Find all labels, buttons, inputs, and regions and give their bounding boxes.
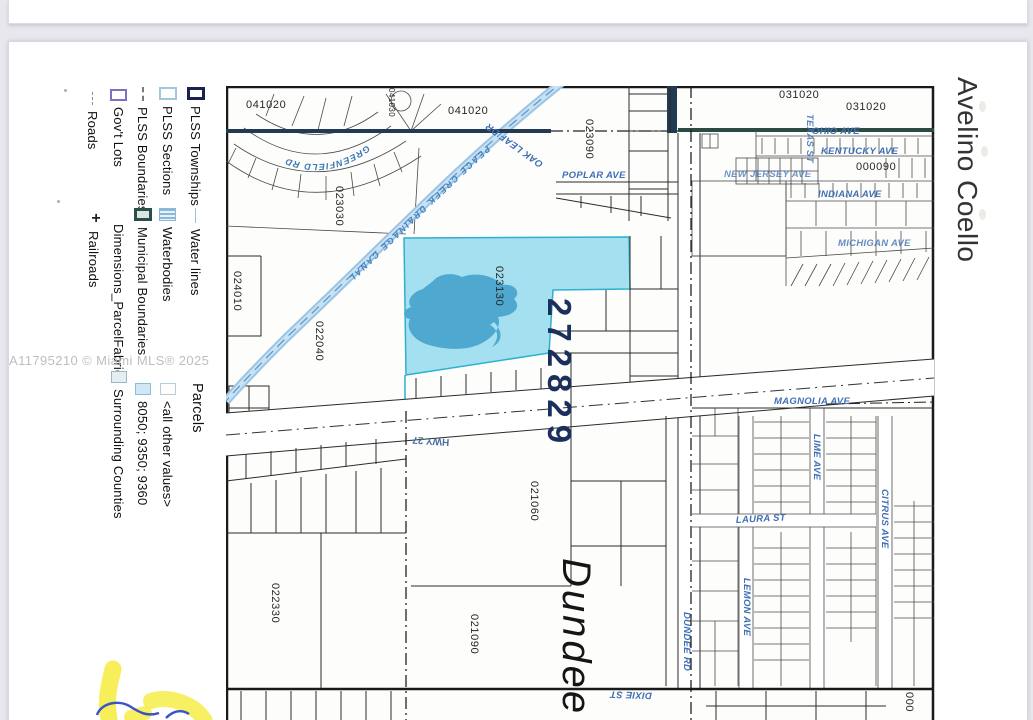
parcel-label-000090: 000090 [856, 161, 896, 173]
street-label-lime-ave: LIME AVE [811, 434, 822, 481]
parcel-label-023030: 023030 [333, 186, 345, 226]
legend-item-parcels-header: Parcels [188, 383, 206, 433]
govt-lots-icon [111, 89, 128, 101]
plss-sections-icon [159, 87, 177, 100]
parcel-label-021090: 021090 [468, 614, 480, 654]
parcel-label-000: 000 [903, 692, 915, 712]
waterbodies-icon [160, 208, 177, 221]
legend-item-waterbodies: Waterbodies [159, 208, 177, 302]
all-other-values-icon [160, 383, 176, 395]
parcel-label-041030: 041030 [387, 88, 396, 117]
legend-label: PLSS Sections [161, 106, 176, 195]
parcel-label-022040: 022040 [313, 321, 325, 361]
street-label-ohio-ave: OHIO AVE [812, 126, 860, 137]
document-page: A11795210 © Miami MLS® 2025 PLSS Townshi… [8, 41, 1028, 720]
legend-item-dimensions-parcelfabric: Dimensions_ParcelFabric [110, 205, 128, 377]
blue-pen-mark [166, 711, 189, 718]
street-label-citrus-ave: CITRUS AVE [879, 489, 890, 549]
street-label-magnolia-ave: MAGNOLIA AVE [774, 396, 850, 407]
legend-item-plss-townships: PLSS Townships [187, 87, 205, 206]
legend-item-govt-lots: Gov't Lots [110, 89, 128, 167]
street-label-texas-st: TEXAS ST [804, 114, 815, 164]
yellow-highlighter-stroke [107, 669, 113, 719]
legend-item-municipal-boundaries: Municipal Boundaries [134, 208, 152, 355]
street-label-poplar-ave: POPLAR AVE [562, 170, 626, 181]
city-label-dundee: Dundee [554, 558, 598, 716]
legend-label: PLSS Boundaries [136, 107, 151, 213]
parcel-label-024010: 024010 [231, 271, 243, 311]
parcel-label-031020-e: 031020 [846, 101, 886, 113]
legend-item-plss-sections: PLSS Sections [159, 87, 177, 195]
parcel-label-023130: 023130 [493, 266, 505, 306]
legend-item-railroads: + Railroads [85, 211, 103, 288]
blue-pen-mark [97, 703, 159, 715]
legend-item-plss-boundaries: PLSS Boundaries [134, 87, 152, 213]
municipal-boundaries-icon [134, 208, 152, 221]
owner-name-label: Avelino Coello [951, 77, 983, 263]
legend-label: Roads [86, 111, 101, 150]
previous-page-edge [8, 0, 1028, 24]
roads-icon [93, 92, 94, 105]
legend-label: Gov't Lots [112, 107, 127, 167]
street-label-new-jersey-ave: NEW JERSEY AVE [724, 169, 812, 180]
spacer [119, 205, 120, 218]
legend-label: 8050; 9350; 9360 [136, 401, 151, 505]
street-label-michigan-ave: MICHIGAN AVE [838, 238, 911, 249]
legend-label: Municipal Boundaries [136, 227, 151, 355]
parcel-label-022330: 022330 [269, 583, 281, 623]
street-label-indiana-ave: INDIANA AVE [818, 189, 882, 200]
parcel-class-icon [135, 383, 151, 395]
legend-item-8050-9350-9360: 8050; 9350; 9360 [134, 383, 152, 505]
viewer-background: A11795210 © Miami MLS® 2025 PLSS Townshi… [0, 0, 1033, 720]
railroads-icon: + [86, 211, 102, 225]
watermark: A11795210 © Miami MLS® 2025 [9, 353, 209, 368]
legend-label: <all other values> [161, 401, 176, 507]
yellow-highlighter-stroke [131, 713, 145, 717]
scan-speck [57, 200, 60, 203]
legend-label: Parcels [189, 383, 205, 433]
scan-speck [64, 89, 67, 92]
parcel-label-021060: 021060 [528, 481, 540, 521]
street-label-lemon-ave: LEMON AVE [741, 578, 752, 636]
parcel-label-041020-w: 041020 [246, 99, 286, 111]
parcel-label-041020-e: 041020 [448, 105, 488, 117]
parcel-label-023090: 023090 [583, 119, 595, 159]
legend-label: Waterbodies [161, 227, 176, 302]
section-number-272829: 272829 [541, 298, 578, 450]
street-label-dixie-st: DIXIE ST [609, 688, 652, 700]
legend-label: Surrounding Counties [112, 389, 127, 519]
street-label-dundee-rd: DUNDEE RD [681, 612, 692, 671]
legend-label: Water lines [189, 229, 204, 296]
legend-item-roads: Roads [84, 92, 102, 150]
parcel-label-031020-w: 031020 [779, 89, 819, 101]
plss-townships-icon [187, 87, 205, 100]
street-label-kentucky-ave: KENTUCKY AVE [821, 146, 899, 157]
legend-item-all-other-values: <all other values> [159, 383, 177, 507]
plss-boundaries-icon [142, 87, 144, 101]
yellow-highlighter-stroke [151, 699, 205, 720]
surrounding-counties-icon [111, 371, 127, 383]
parcel-map: PEACE CREEK DRAINAGE CANAL GREENFIELD RD [226, 86, 936, 720]
legend-item-surrounding-counties: Surrounding Counties [110, 371, 128, 519]
legend-label: Railroads [87, 231, 102, 288]
legend-item-water-lines: Water lines [187, 208, 205, 296]
legend-label: PLSS Townships [189, 106, 204, 206]
water-lines-icon [196, 208, 197, 223]
